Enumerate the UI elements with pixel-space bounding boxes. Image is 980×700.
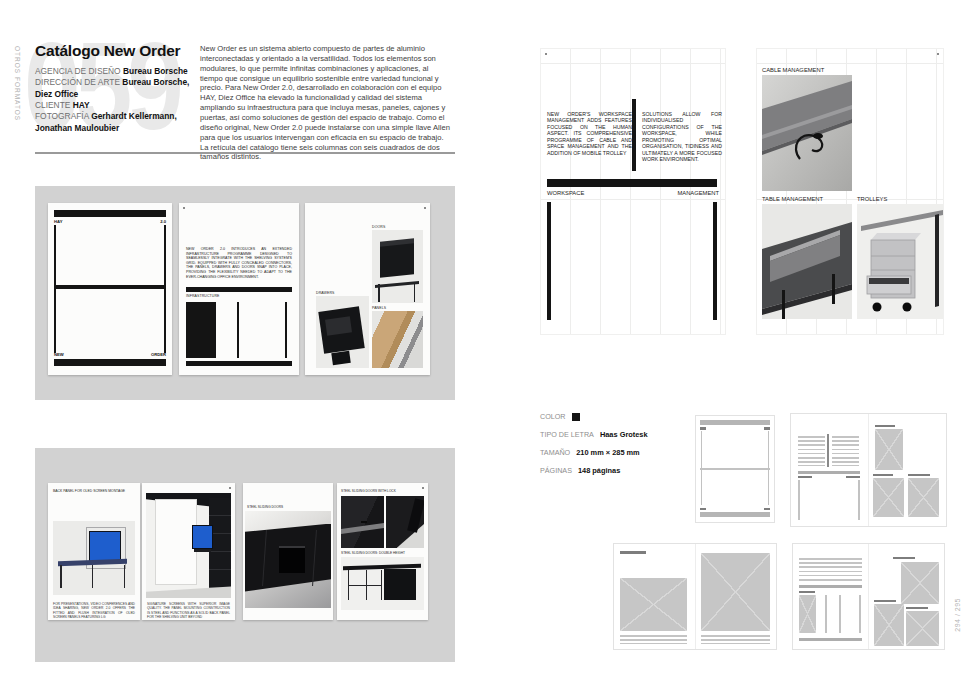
wire-label — [893, 557, 915, 559]
credit-art-direction: DIRECCIÓN DE ARTE Bureau Borsche, Diez O… — [35, 77, 205, 100]
catalog-infrastructure-page: NEW ORDER 2.0 INTRODUCES AN EXTENDED INF… — [179, 203, 299, 375]
table-management-label: TABLE MANAGEMENT — [762, 196, 823, 202]
workspace-right-page: CABLE MANAGEMENT TABLE MANAGEMENT — [756, 48, 944, 335]
shelf-shape — [375, 281, 419, 288]
leg-shape — [92, 565, 93, 587]
sliding-doors-page: STEEL SLIDING DOORS — [243, 483, 333, 620]
gallery-panel-top: HAY 2.0 NEW ORDER NEW ORDER 2.0 INTRODUC… — [35, 186, 455, 400]
section-bar — [547, 179, 717, 187]
grid-line — [237, 302, 239, 358]
wire-image-box — [873, 478, 904, 517]
trolleys-label: TROLLEYS — [857, 196, 887, 202]
shelving-photo — [146, 493, 231, 598]
wire-label — [799, 591, 815, 593]
typeface-label: TIPO DE LETRA — [540, 430, 594, 439]
infrastructure-label: INFRASTRUCTURE — [186, 294, 219, 298]
wire-image-box — [620, 578, 687, 631]
credit-client: CLIENTE HAY — [35, 100, 205, 111]
size-label: TAMAÑO — [540, 448, 570, 457]
doors-lock-page: STEEL SLIDING DOORS WITH LOCK STEEL SLID… — [337, 483, 428, 620]
wire-image-box — [908, 478, 939, 517]
trolleys-photo — [857, 204, 943, 319]
credit-label: CLIENTE — [35, 100, 70, 110]
workspace-left-page: NEW ORDER'S WORKSPACE MANAGEMENT ADDS FE… — [540, 48, 726, 335]
wire-rule — [839, 595, 841, 633]
layout-thumbnail-doors — [792, 543, 945, 650]
size-value: 210 mm × 285 mm — [576, 448, 639, 457]
shelf-shape — [348, 585, 381, 587]
credit-photography: FOTOGRAFÍA Gerhardt Kellermann, Jonathan… — [35, 111, 205, 134]
cabinet-shape — [384, 569, 416, 600]
infrastructure-body-text: NEW ORDER 2.0 INTRODUCES AN EXTENDED INF… — [186, 247, 292, 279]
credit-label: FOTOGRAFÍA — [35, 111, 89, 121]
open-compartment-shape — [279, 546, 306, 573]
cover-word-new: NEW — [54, 352, 64, 357]
cover-left-rule — [54, 225, 56, 353]
column-divider-bar — [632, 99, 636, 171]
spec-typeface-row: TIPO DE LETRA Haas Grotesk — [540, 430, 750, 439]
wire-text-lines — [701, 635, 770, 644]
oled-montage-page: BACK PANEL FOR OLED SCREEN MONTAGE FOR P… — [48, 483, 140, 620]
workspace-column-1: NEW ORDER'S WORKSPACE MANAGEMENT ADDS FE… — [547, 111, 632, 156]
catalog-cover-page: HAY 2.0 NEW ORDER — [48, 203, 172, 375]
cover-bottom-bar — [54, 359, 166, 366]
wire-image-box — [874, 604, 904, 646]
wire-mark — [700, 508, 706, 511]
drawers-photo — [316, 296, 369, 368]
credit-value: Bureau Borsche — [123, 66, 188, 76]
page-title: Catálogo New Order — [35, 42, 180, 60]
panels-label: PANELS — [372, 306, 386, 310]
workspace-column-2: SOLUTIONS ALLOW FOR INDIVIDUALISED CONFI… — [642, 111, 722, 163]
wire-text-lines — [832, 436, 859, 466]
layout-thumbnail-workspace — [790, 413, 947, 527]
section-label: OTROS FORMATOS — [14, 46, 21, 121]
handle-shape — [361, 521, 367, 523]
credits-block: AGENCIA DE DISEÑO Bureau Borsche DIRECCI… — [35, 66, 205, 134]
cover-top-row: HAY 2.0 — [54, 219, 166, 224]
cover-mid-bar — [54, 285, 166, 289]
color-swatch — [572, 413, 580, 421]
workspace-labels-row: WORKSPACE MANAGEMENT — [547, 190, 719, 196]
wire-label — [798, 476, 812, 478]
leg-shape — [414, 284, 416, 302]
folio: 294 / 295 — [954, 598, 961, 632]
wire-divider — [827, 434, 829, 467]
wire-label — [846, 476, 860, 478]
left-rule-bar — [547, 202, 551, 320]
leg-shape — [378, 284, 380, 302]
door-edge-shape — [341, 523, 384, 534]
leg-shape — [124, 565, 125, 587]
spec-color-row: COLOR — [540, 412, 750, 421]
screen-shelving-page: SIGNATURE SCREENS WITH SUPERIOR IMAGE QU… — [142, 483, 235, 620]
page-number-dot — [545, 53, 547, 55]
panels-photo — [372, 311, 423, 368]
pages-label: PÁGINAS — [540, 466, 572, 475]
wire-label — [873, 474, 893, 476]
wire-bar — [700, 512, 770, 517]
trolley-photo-art — [857, 204, 943, 319]
wire-image-box — [799, 595, 816, 633]
cover-bottom-row: NEW ORDER — [54, 352, 166, 357]
color-label: COLOR — [540, 412, 566, 421]
wire-label — [874, 600, 896, 602]
wire-image-box — [875, 429, 903, 470]
cover-right-rule — [164, 225, 166, 353]
drawer-face-shape — [325, 316, 352, 335]
specs-block: COLOR TIPO DE LETRA Haas Grotesk TAMAÑO … — [540, 412, 750, 484]
credit-value: HAY — [73, 100, 90, 110]
blue-screen-shape — [89, 531, 121, 563]
page-number-dot — [183, 207, 185, 209]
wire-text-lines — [798, 436, 825, 466]
footer-bar — [186, 361, 292, 366]
gallery-panel-bottom: BACK PANEL FOR OLED SCREEN MONTAGE FOR P… — [35, 448, 455, 662]
grid-line — [285, 302, 287, 358]
cover-version: 2.0 — [160, 219, 166, 224]
doors-photo — [372, 230, 423, 303]
thumb-gutter — [868, 544, 869, 649]
drawers-label: DRAWERS — [316, 291, 334, 295]
right-rule-bar — [713, 202, 717, 320]
sliding-doors-photo — [245, 511, 331, 608]
wire-bar — [799, 638, 862, 641]
catalog-components-page: DOORS DRAWERS PANELS — [305, 203, 430, 375]
pages-value: 148 páginas — [578, 466, 620, 475]
wire-rule — [825, 595, 827, 633]
wire-rule — [859, 595, 861, 633]
cable-management-label: CABLE MANAGEMENT — [762, 67, 824, 73]
cover-top-bar — [54, 210, 166, 217]
wire-label — [908, 474, 930, 476]
credit-agency: AGENCIA DE DISEÑO Bureau Borsche — [35, 66, 205, 77]
page-number-dot — [424, 207, 426, 209]
page-number-dot — [937, 53, 939, 55]
double-height-label: STEEL SLIDING DOORS: DOUBLE HEIGHT — [341, 551, 405, 555]
leg-shape — [60, 565, 61, 587]
wire-bar — [799, 585, 862, 588]
wire-rule — [858, 480, 860, 520]
spec-size-row: TAMAÑO 210 mm × 285 mm — [540, 448, 750, 457]
oled-table-photo — [53, 521, 135, 595]
drawer-foot-shape — [331, 351, 350, 365]
wire-bar — [798, 471, 860, 474]
credit-label: AGENCIA DE DISEÑO — [35, 66, 121, 76]
wire-image-box — [906, 611, 939, 646]
spec-pages-row: PÁGINAS 148 páginas — [540, 466, 750, 475]
table-photo-art — [762, 204, 852, 319]
page-number-dot — [229, 487, 231, 489]
sliding-doors-label: STEEL SLIDING DOORS — [247, 505, 283, 509]
oled-page-header: BACK PANEL FOR OLED SCREEN MONTAGE — [53, 489, 125, 493]
cover-word-order: ORDER — [151, 352, 166, 357]
credit-label: DIRECCIÓN DE ARTE — [35, 77, 120, 87]
section-bar — [186, 287, 292, 292]
blue-screen-shape — [192, 525, 214, 549]
lock-detail-photo-2 — [386, 496, 424, 548]
wire-label — [906, 607, 928, 609]
management-label: MANAGEMENT — [677, 190, 719, 196]
wire-label — [875, 425, 895, 427]
workspace-label: WORKSPACE — [547, 190, 584, 196]
shelving-caption: SIGNATURE SCREENS WITH SUPERIOR IMAGE QU… — [147, 602, 230, 619]
grid-block — [186, 302, 216, 358]
cable-photo-art — [762, 75, 852, 191]
book-spread-scan: 059 OTROS FORMATOS Catálogo New Order AG… — [0, 0, 980, 700]
thumb-gutter — [868, 414, 869, 526]
leg-shape — [381, 570, 382, 600]
wire-mark — [764, 508, 770, 511]
typeface-value: Haas Grotesk — [600, 430, 648, 439]
cover-brand: HAY — [54, 219, 62, 224]
wire-text-lines — [799, 558, 862, 582]
lock-detail-photo-1 — [341, 496, 384, 548]
wire-text-lines — [620, 635, 687, 644]
double-height-photo — [341, 557, 424, 610]
page-number-dot — [422, 487, 424, 489]
cable-management-photo — [762, 75, 852, 191]
floor-shape — [146, 586, 231, 598]
table-management-photo — [762, 204, 852, 319]
layout-thumbnail-oled — [613, 543, 777, 650]
wire-label — [620, 551, 646, 554]
doors-with-lock-label: STEEL SLIDING DOORS WITH LOCK — [341, 489, 396, 493]
wire-mark — [764, 427, 770, 430]
desk-shape — [194, 549, 211, 553]
wire-image-box — [901, 562, 939, 604]
thumb-gutter — [695, 544, 696, 649]
intro-paragraph: New Order es un sistema abierto compuest… — [200, 44, 453, 162]
wire-image-box — [701, 553, 770, 631]
oled-caption: FOR PRESENTATIONS, VIDEO CONFERENCES AND… — [53, 602, 135, 619]
wire-rule — [798, 480, 800, 520]
doors-label: DOORS — [372, 225, 385, 229]
drawer-box-shape — [380, 243, 414, 277]
